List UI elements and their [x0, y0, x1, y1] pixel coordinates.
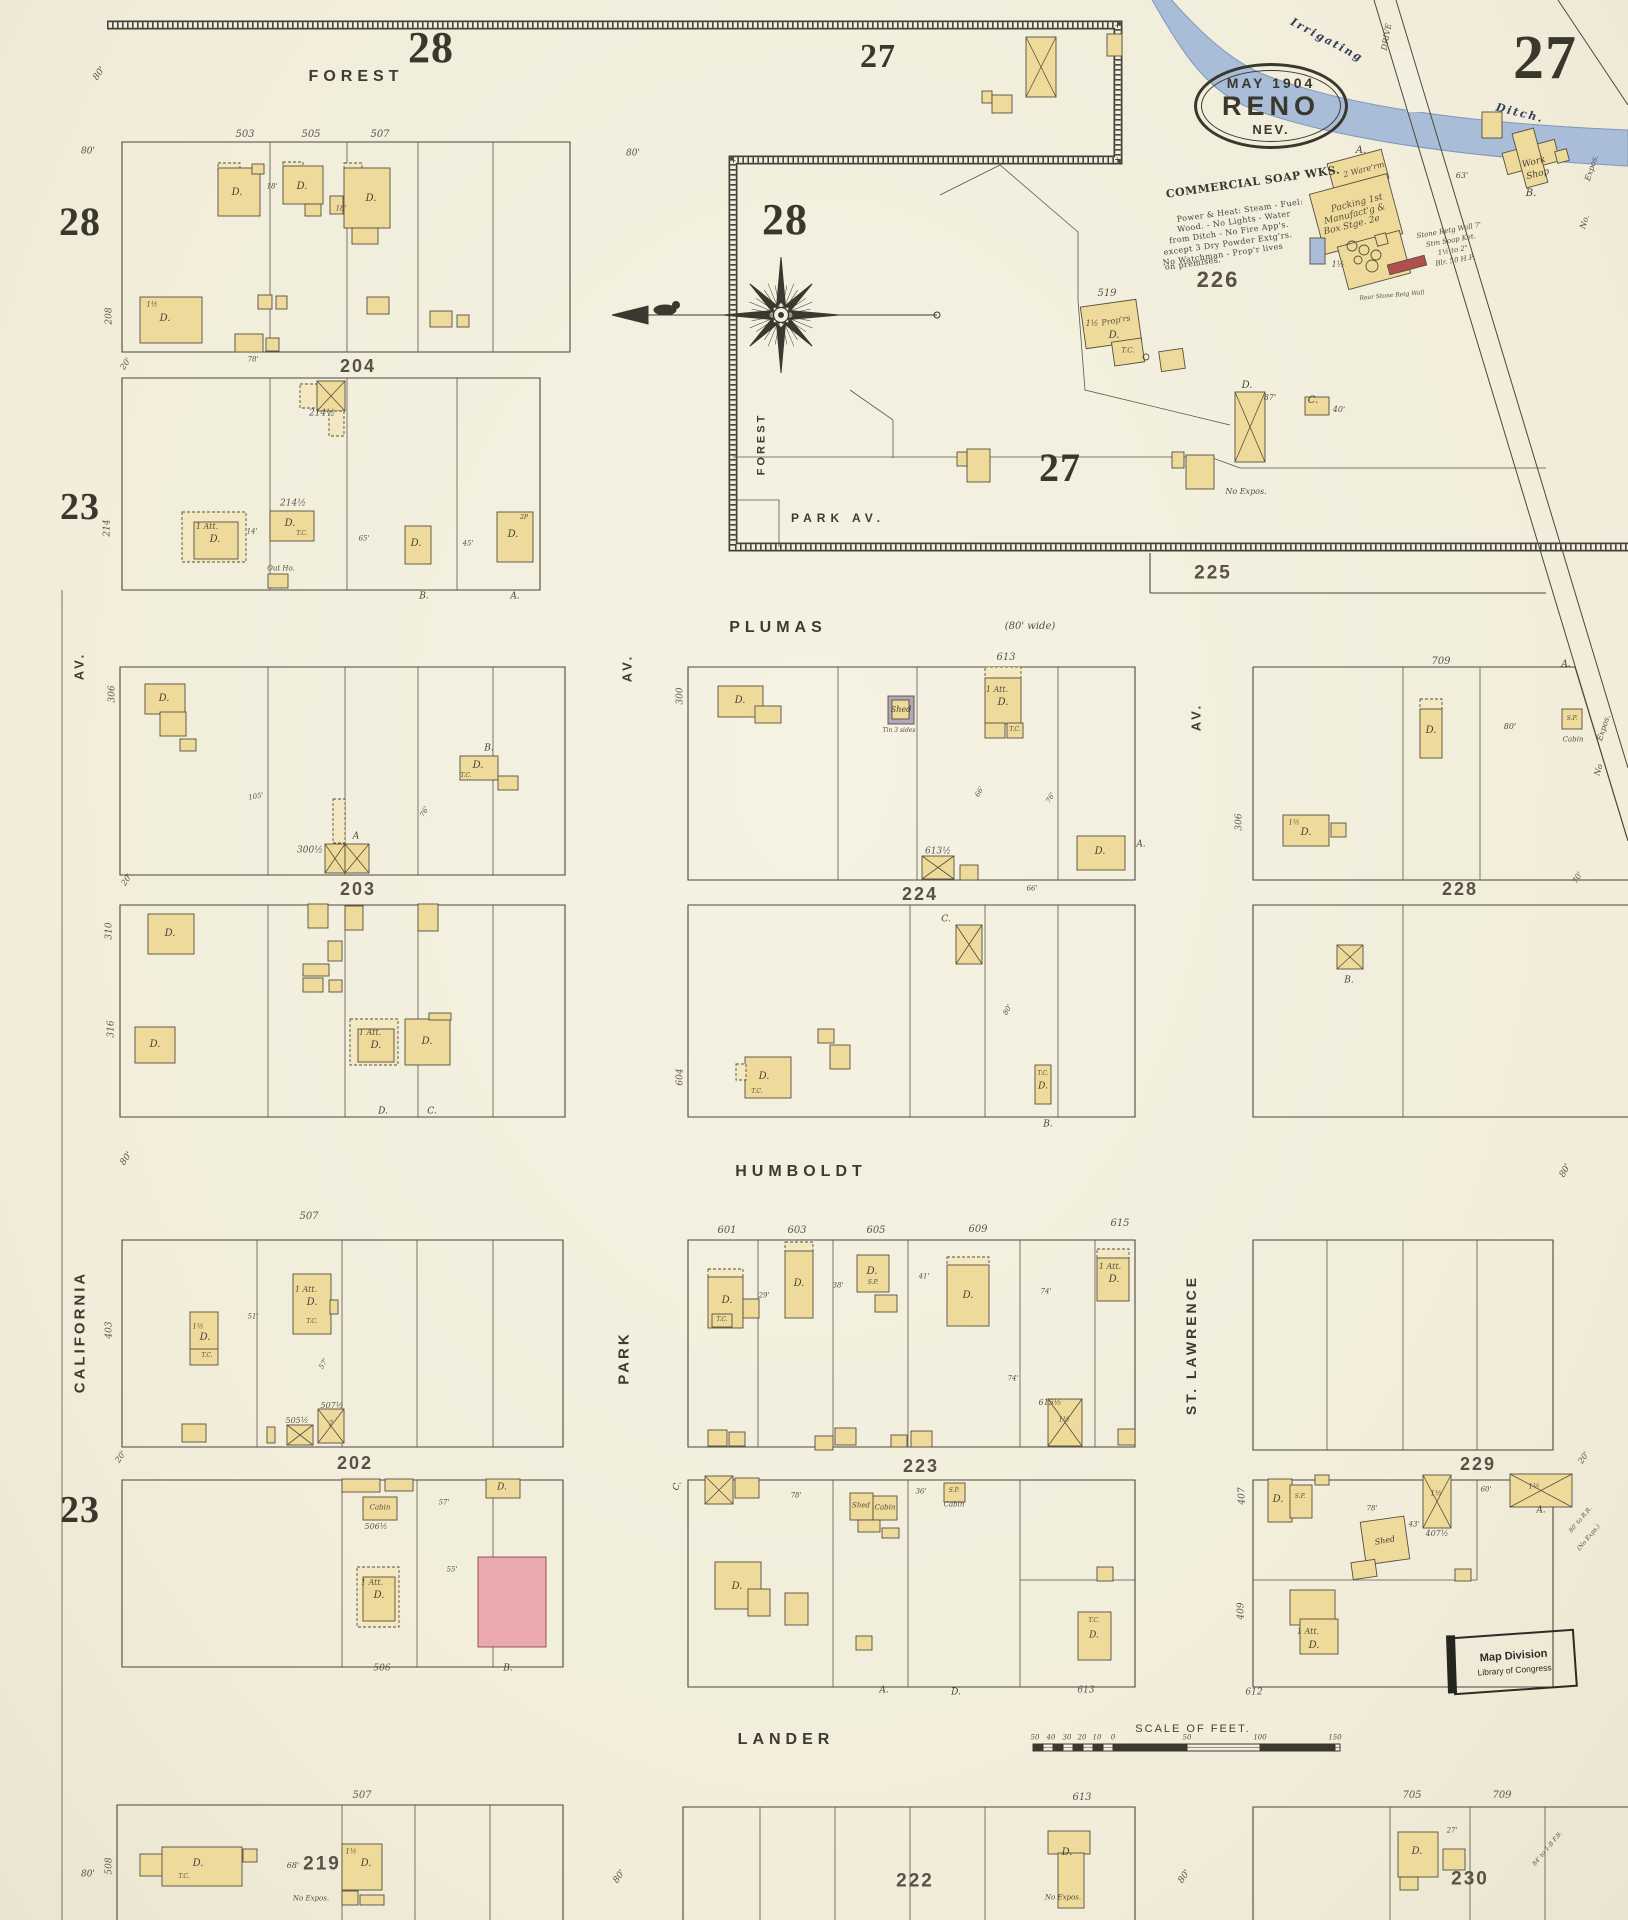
map-label: 51' — [248, 1314, 259, 1321]
map-label: 507½ — [320, 1402, 343, 1410]
map-label: D. — [378, 1108, 388, 1117]
map-label: T.C. — [1009, 727, 1020, 733]
map-label: A. — [1536, 1507, 1545, 1516]
map-label: D. — [200, 1333, 211, 1343]
map-label: 41' — [919, 1274, 930, 1281]
map-label: 84' to 1-B F.B. — [1532, 1831, 1564, 1868]
map-label: D. — [210, 535, 221, 545]
map-label: 57' — [439, 1500, 450, 1507]
map-label: D. — [998, 698, 1009, 708]
map-label: D. — [1426, 726, 1437, 736]
map-label: D. — [951, 1689, 961, 1698]
map-label: 1 Att. — [1297, 1628, 1319, 1636]
map-label: D. — [285, 519, 296, 529]
map-label: 603 — [787, 1226, 806, 1236]
map-label: 214½ — [280, 500, 306, 509]
map-label: 80' — [1177, 1869, 1192, 1886]
map-label: 80' — [81, 148, 95, 157]
map-label: 40' — [1333, 406, 1345, 414]
map-label: T.C. — [296, 531, 307, 537]
map-label: T.C. — [716, 1317, 727, 1323]
map-label: D. — [366, 194, 377, 204]
map-label: A. — [1356, 146, 1366, 156]
map-label: D. — [232, 188, 243, 198]
map-label: HUMBOLDT — [735, 1164, 867, 1180]
map-label: D. — [307, 1298, 318, 1308]
map-label: D. — [150, 1040, 161, 1050]
map-label: T.C. — [178, 1874, 189, 1880]
map-label: 214½ — [309, 410, 335, 419]
sanborn-map-sheet: MAY 1904 RENO NEV. Map Division Library … — [0, 0, 1628, 1920]
map-label: Shop — [1526, 168, 1551, 182]
map-label: D. — [794, 1279, 805, 1289]
map-label: 505 — [301, 130, 320, 140]
map-label: 78' — [791, 1493, 802, 1500]
map-label: 1 Att. — [1099, 1263, 1121, 1271]
map-label: 20' — [119, 357, 133, 372]
map-label: D. — [1038, 1083, 1048, 1092]
map-label: Shed — [1374, 1535, 1396, 1546]
map-label: 226 — [1197, 269, 1240, 291]
map-label: 1½ — [345, 1849, 356, 1856]
map-label: D. — [1062, 1848, 1073, 1858]
map-label: 507 — [370, 130, 389, 140]
map-label: DRIVE — [1381, 23, 1394, 51]
map-label: 503 — [235, 130, 254, 140]
map-label: PARK AV. — [791, 512, 885, 524]
map-label: (80' wide) — [1005, 622, 1056, 632]
map-label: 1 Att. — [361, 1579, 383, 1587]
map-label: COMMERCIAL SOAP WKS. — [1165, 164, 1340, 199]
map-label: 230 — [1451, 1870, 1489, 1889]
map-label: 223 — [903, 1457, 939, 1475]
map-label: 65' — [359, 536, 370, 543]
map-label: 409 — [1238, 1602, 1247, 1619]
map-label: 605 — [866, 1226, 885, 1236]
map-label: 38' — [833, 1283, 844, 1290]
map-label: Expos. — [1596, 714, 1612, 742]
map-label: FOREST — [309, 69, 404, 85]
map-label: 1 Att. — [295, 1286, 317, 1294]
map-label: Irrigating — [1289, 16, 1365, 64]
map-label: 55' — [447, 1567, 458, 1574]
map-label: 709 — [1431, 657, 1450, 667]
map-label: 80' — [612, 1869, 627, 1886]
map-label: 68' — [287, 1862, 299, 1870]
map-label: 14' — [247, 529, 258, 536]
map-label: B. — [1344, 977, 1353, 986]
map-label: 1½ — [1528, 1484, 1539, 1491]
map-label: 18' — [336, 206, 347, 213]
map-label: 203 — [340, 880, 376, 898]
map-label: 0 — [1111, 1735, 1115, 1742]
map-label: 43' — [1409, 1522, 1420, 1529]
map-label: 2P — [520, 515, 528, 521]
map-label: D. — [722, 1296, 733, 1306]
map-label: 80' — [92, 66, 107, 83]
map-label: C. — [427, 1108, 436, 1117]
map-label: 20' — [114, 1450, 128, 1465]
map-label: D. — [361, 1859, 372, 1869]
map-label: ST. LAWRENCE — [1184, 1275, 1198, 1415]
map-label: 208 — [106, 307, 115, 324]
map-label: 407½ — [1425, 1530, 1448, 1538]
map-label: D. — [497, 1484, 507, 1493]
map-label: No — [1593, 763, 1604, 777]
map-label: 36' — [916, 1489, 927, 1496]
map-label: D. — [159, 694, 170, 704]
map-label: 507 — [352, 1791, 371, 1801]
map-label: A. — [879, 1687, 888, 1696]
map-label: 508 — [106, 1857, 115, 1874]
map-label: T.C. — [1037, 1071, 1048, 1077]
map-label: D. — [1109, 331, 1120, 341]
map-label: Cabin — [370, 1505, 391, 1512]
map-label: FOREST — [757, 413, 768, 476]
map-label: 80' — [1559, 1163, 1574, 1180]
map-label: D. — [1109, 1275, 1120, 1285]
map-label: 27' — [1447, 1828, 1458, 1835]
map-label: 604 — [677, 1068, 686, 1085]
map-labels-layer: 2728282827272323226225204203202224223228… — [0, 0, 1628, 1920]
map-label: C. — [941, 916, 950, 925]
map-label: 1½ — [146, 302, 157, 309]
map-label: 615½ — [1038, 1399, 1061, 1407]
map-label: 1½ — [192, 1324, 203, 1331]
map-label: 300 — [677, 687, 686, 704]
map-label: D. — [1242, 381, 1253, 391]
map-title-state: NEV. — [1252, 122, 1289, 137]
map-label: 29' — [759, 1293, 770, 1300]
map-label: 222 — [896, 1872, 934, 1891]
map-label: 1½ — [1058, 1417, 1069, 1424]
map-label: A — [353, 833, 360, 842]
map-label: 27 — [1513, 27, 1577, 89]
map-label: 10 — [1093, 1735, 1102, 1742]
map-label: 219 — [303, 1855, 341, 1874]
map-label: 507 — [299, 1212, 318, 1222]
map-label: Ditch. — [1495, 102, 1546, 125]
map-label: 28 — [59, 202, 101, 242]
map-label: AV. — [621, 654, 634, 683]
map-label: Cabin — [1563, 737, 1584, 744]
map-label: AV. — [73, 652, 86, 681]
map-label: B. — [419, 593, 428, 602]
map-label: 27 — [860, 40, 896, 74]
map-label: 407 — [1239, 1487, 1248, 1504]
map-label: 105' — [248, 792, 264, 802]
map-label: No. — [1579, 214, 1591, 230]
map-label: T.C. — [306, 1319, 317, 1325]
map-label: D. — [1412, 1847, 1423, 1857]
map-label: 613 — [1072, 1793, 1091, 1803]
map-label: T.C. — [751, 1089, 762, 1095]
map-label: 57' — [318, 1358, 329, 1371]
map-label: D. — [193, 1859, 204, 1869]
map-label: (No Exps.) — [1576, 1524, 1601, 1552]
map-label: No Expos. — [293, 1896, 329, 1903]
map-label: D. — [165, 929, 176, 939]
map-label: D. — [508, 530, 519, 540]
map-label: 40 — [1047, 1735, 1056, 1742]
map-label: D. — [867, 1267, 878, 1277]
map-label: 2 Ware'rm — [1343, 161, 1386, 180]
map-label: Shed — [891, 706, 912, 714]
map-label: 78' — [248, 357, 259, 364]
map-label: Expos. — [1584, 154, 1600, 182]
map-label: 45' — [463, 541, 474, 548]
map-label: D. — [371, 1041, 382, 1051]
map-label: D. — [1273, 1495, 1284, 1505]
map-label: B. — [503, 1665, 512, 1674]
map-label: 76' — [1045, 792, 1056, 805]
map-label: 228 — [1442, 880, 1478, 898]
map-label: CALIFORNIA — [73, 1271, 88, 1394]
map-label: 1 Att. — [359, 1029, 381, 1037]
map-label: S.P. — [949, 1488, 960, 1494]
map-title-date: MAY 1904 — [1227, 75, 1316, 91]
map-label: D. — [1095, 847, 1106, 857]
map-label: D. — [759, 1072, 770, 1082]
map-label: C. — [672, 1480, 684, 1492]
map-label: 100 — [1253, 1735, 1266, 1742]
map-label: D. — [422, 1037, 433, 1047]
map-label: 505½ — [285, 1417, 308, 1425]
map-label: 74' — [1008, 1376, 1019, 1383]
map-label: D. — [1089, 1632, 1099, 1641]
map-label: 615 — [1110, 1219, 1129, 1229]
map-label: 306 — [1236, 813, 1245, 830]
map-label: 1½ — [1430, 1491, 1441, 1498]
map-label: 66' — [1027, 886, 1038, 893]
map-label: 150 — [1328, 1735, 1341, 1742]
map-label: 2 — [329, 1421, 333, 1428]
map-label: No Expos. — [1045, 1895, 1081, 1902]
map-label: Prop'rs — [1101, 315, 1131, 328]
map-label: 506 — [373, 1665, 390, 1674]
map-label: S.P. — [1295, 1494, 1306, 1500]
map-label: 1½ — [1332, 261, 1345, 269]
map-label: 1½ — [1086, 320, 1099, 328]
map-label: B. — [484, 745, 493, 754]
map-label: LANDER — [738, 1732, 835, 1748]
map-label: C. — [1308, 396, 1318, 406]
map-label: 23 — [60, 488, 100, 526]
map-label: PLUMAS — [729, 620, 827, 636]
map-label: Tin 3 sides — [883, 728, 916, 734]
map-label: AV. — [1190, 703, 1203, 732]
map-label: 20' — [120, 873, 134, 888]
map-label: 80' — [626, 150, 640, 159]
map-label: 1 Att. — [196, 523, 218, 531]
map-label: D. — [732, 1582, 743, 1592]
map-label: D. — [1301, 828, 1312, 838]
map-label: A. — [1561, 661, 1570, 670]
map-label: D. — [473, 761, 484, 771]
map-label: 76' — [419, 806, 430, 819]
map-label: 403 — [106, 1321, 115, 1338]
map-label: 202 — [337, 1454, 373, 1472]
map-label: 20' — [1577, 1451, 1591, 1466]
map-label: 601 — [717, 1226, 736, 1236]
map-label: D. — [297, 182, 308, 192]
map-label: 705 — [1402, 1791, 1421, 1801]
map-label: 310 — [106, 922, 115, 939]
map-label: T.C. — [1121, 348, 1134, 355]
map-label: 316 — [108, 1020, 117, 1037]
map-label: A. — [510, 593, 519, 602]
map-label: T.C. — [460, 773, 471, 779]
map-label: 18' — [267, 184, 278, 191]
map-label: 229 — [1460, 1455, 1496, 1473]
map-label: 80' — [1002, 1004, 1013, 1017]
map-label: 613 — [996, 653, 1015, 663]
map-label: D. — [160, 314, 171, 324]
map-label: D. — [411, 539, 422, 549]
map-label: 50 — [1031, 1735, 1040, 1742]
map-label: 204 — [340, 357, 376, 375]
map-label: 20 — [1078, 1735, 1087, 1742]
map-label: 28 — [408, 26, 454, 70]
map-label: 613½ — [925, 848, 951, 857]
map-label: 612 — [1245, 1689, 1262, 1698]
map-label: 50 — [1183, 1735, 1192, 1742]
map-label: 214 — [104, 519, 113, 536]
map-label: B. — [1526, 189, 1537, 199]
map-label: 609 — [968, 1225, 987, 1235]
map-label: A. — [1136, 841, 1145, 850]
map-label: 78' — [1367, 1506, 1378, 1513]
map-label: S.P. — [868, 1280, 879, 1286]
map-label: 224 — [902, 885, 938, 903]
map-label: 63' — [1456, 172, 1468, 180]
map-label: 80' — [1504, 723, 1516, 731]
map-label: 519 — [1097, 289, 1116, 299]
map-label: 70' — [1571, 871, 1584, 886]
map-label: 28 — [762, 198, 808, 242]
map-label: No Expos. — [1225, 488, 1266, 496]
map-label: 613 — [1077, 1687, 1094, 1696]
map-label: T.C. — [201, 1353, 212, 1359]
map-label: S.P. — [1567, 716, 1578, 722]
map-label: D. — [963, 1291, 974, 1301]
map-label: 225 — [1194, 564, 1232, 583]
map-label: Shed — [852, 1503, 870, 1510]
map-label: 60' — [1481, 1487, 1492, 1494]
map-label: PARK — [617, 1331, 632, 1384]
map-label: 23 — [60, 1491, 100, 1529]
map-label: Rear Stone Retg Wall — [1359, 290, 1424, 302]
map-label: 80' — [81, 1871, 95, 1880]
map-label: D. — [1309, 1641, 1320, 1651]
map-label: 74' — [1041, 1289, 1052, 1296]
map-label: 27 — [1039, 448, 1081, 488]
map-label: 1½ — [1288, 820, 1299, 827]
map-label: 87' — [1264, 394, 1276, 402]
map-title-city: RENO — [1222, 91, 1320, 122]
map-label: 1 Att. — [986, 686, 1008, 694]
map-label: Cabin — [944, 1502, 965, 1509]
map-label: 30 — [1063, 1735, 1072, 1742]
map-label: B. — [1043, 1121, 1052, 1130]
map-label: T.C. — [1088, 1618, 1099, 1624]
map-label: Cabin — [875, 1505, 896, 1512]
map-label: 300½ — [297, 847, 323, 856]
map-label: 80' — [119, 1151, 134, 1168]
map-label: 506½ — [364, 1523, 387, 1531]
map-label: 709 — [1492, 1791, 1511, 1801]
map-label: Out Ho. — [267, 566, 295, 573]
map-label: 306 — [109, 685, 118, 702]
map-label: D. — [374, 1591, 385, 1601]
map-label: D. — [735, 696, 746, 706]
map-label: 66' — [974, 786, 985, 799]
